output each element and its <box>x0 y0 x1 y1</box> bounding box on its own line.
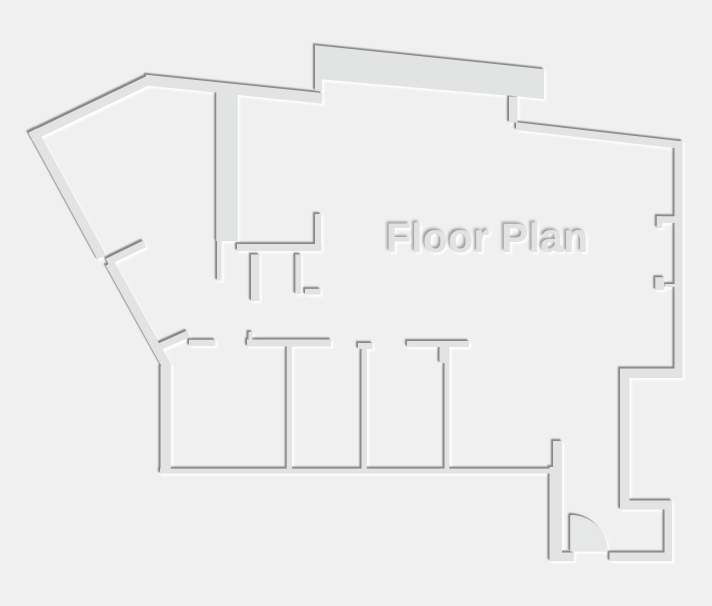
svg-text:Floor Plan: Floor Plan <box>386 215 588 261</box>
